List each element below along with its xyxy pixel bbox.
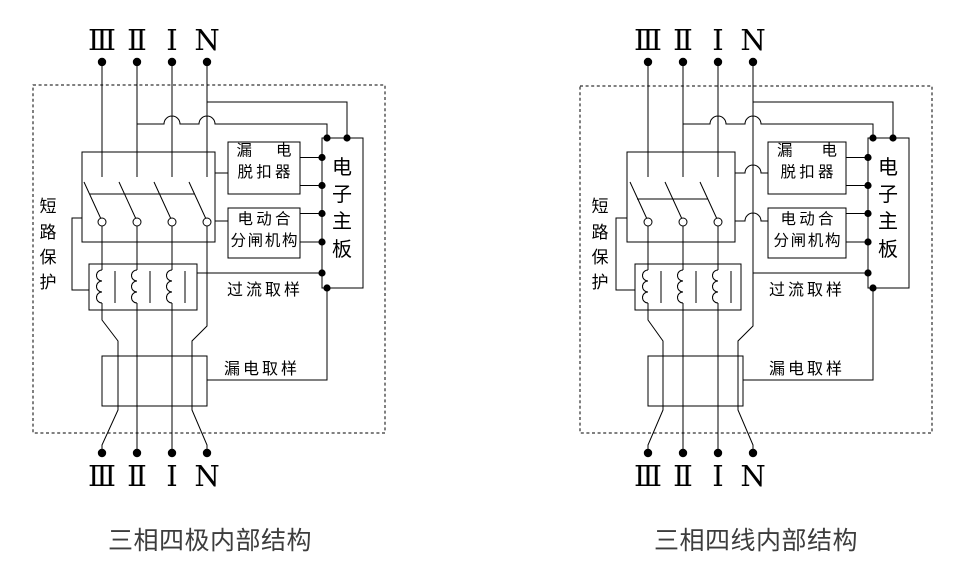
terminal-dot xyxy=(644,58,652,66)
terminal-label-bottom: N xyxy=(740,459,765,493)
terminal-dot xyxy=(749,449,757,457)
terminal-label-bottom: Ⅲ xyxy=(634,459,662,493)
terminal-dot xyxy=(98,58,106,66)
leakage-tripper-label: 漏 电 xyxy=(777,142,837,160)
junction-dot xyxy=(323,284,330,291)
terminal-label-bottom: Ⅰ xyxy=(166,459,177,493)
terminal-label-top: N xyxy=(740,23,765,57)
terminal-label-top: Ⅲ xyxy=(88,23,116,57)
junction-dot xyxy=(318,238,325,245)
circuit-diagrams: Ⅲ Ⅱ Ⅰ N Ⅲ Ⅱ Ⅰ N 短 路 保 护 漏 电 脱扣器 电动合 分闸机构… xyxy=(0,0,964,576)
junction-dot xyxy=(318,210,325,217)
page-canvas: Ⅲ Ⅱ Ⅰ N Ⅲ Ⅱ Ⅰ N 短 路 保 护 漏 电 脱扣器 电动合 分闸机构… xyxy=(0,0,964,576)
short-circuit-protection-label: 路 xyxy=(592,223,609,242)
terminal-dot xyxy=(133,449,141,457)
junction-dot xyxy=(864,210,871,217)
junction-dot xyxy=(869,284,876,291)
junction-dot xyxy=(864,238,871,245)
terminal-dot xyxy=(203,58,211,66)
terminal-label-bottom: Ⅰ xyxy=(712,459,723,493)
terminal-dot xyxy=(749,58,757,66)
junction-dot xyxy=(343,134,350,141)
terminal-label-bottom: Ⅲ xyxy=(88,459,116,493)
main-board-label: 子 xyxy=(332,184,352,206)
diagram-caption: 三相四线内部结构 xyxy=(654,526,858,555)
short-circuit-protection-label: 短 xyxy=(592,197,609,216)
main-board-label: 主 xyxy=(332,210,352,233)
junction-dot xyxy=(318,182,325,189)
short-circuit-protection-label: 保 xyxy=(40,248,57,267)
switch-contact xyxy=(168,218,176,226)
short-circuit-protection-label: 护 xyxy=(40,273,57,292)
terminal-dot xyxy=(714,449,722,457)
switch-contact xyxy=(714,218,722,226)
terminal-label-top: N xyxy=(194,23,219,57)
terminal-dot xyxy=(133,58,141,66)
terminal-label-top: Ⅱ xyxy=(127,23,147,57)
terminal-dot xyxy=(98,449,106,457)
terminal-dot xyxy=(714,58,722,66)
terminal-label-top: Ⅲ xyxy=(634,23,662,57)
terminal-dot xyxy=(203,449,211,457)
leakage-tripper-label: 脱扣器 xyxy=(781,163,834,181)
short-circuit-protection-label: 路 xyxy=(40,223,57,242)
diagram-caption: 三相四极内部结构 xyxy=(108,526,312,555)
short-circuit-protection-label: 护 xyxy=(592,273,609,292)
terminal-dot xyxy=(644,449,652,457)
motor-mechanism-label: 分闸机构 xyxy=(774,232,841,250)
junction-dot xyxy=(889,134,896,141)
motor-mechanism-label: 分闸机构 xyxy=(231,232,298,250)
terminal-label-bottom: Ⅱ xyxy=(673,459,693,493)
main-board-label: 板 xyxy=(332,238,352,261)
terminal-label-top: Ⅰ xyxy=(712,23,723,57)
switch-contact xyxy=(644,218,652,226)
terminal-dot xyxy=(679,449,687,457)
motor-mechanism-label: 电动合 xyxy=(781,210,834,228)
junction-dot xyxy=(864,182,871,189)
switch-contact xyxy=(679,218,687,226)
main-board-label: 子 xyxy=(878,184,898,206)
leakage-tripper-label: 漏 电 xyxy=(237,142,292,160)
switch-contact xyxy=(98,218,106,226)
main-board-label: 电 xyxy=(332,156,352,179)
motor-mechanism-label: 电动合 xyxy=(238,210,291,228)
junction-dot xyxy=(864,154,871,161)
junction-dot xyxy=(864,269,871,276)
main-board-label: 主 xyxy=(878,210,898,233)
terminal-dot xyxy=(168,449,176,457)
terminal-label-top: Ⅰ xyxy=(166,23,177,57)
terminal-label-bottom: Ⅱ xyxy=(127,459,147,493)
main-board-label: 板 xyxy=(878,238,898,261)
main-board-label: 电 xyxy=(878,156,898,179)
short-circuit-protection-label: 保 xyxy=(592,248,609,267)
terminal-dot xyxy=(679,58,687,66)
terminal-label-top: Ⅱ xyxy=(673,23,693,57)
switch-contact xyxy=(133,218,141,226)
leakage-tripper-label: 脱扣器 xyxy=(238,163,291,181)
junction-dot xyxy=(323,134,330,141)
terminal-label-bottom: N xyxy=(194,459,219,493)
junction-dot xyxy=(318,269,325,276)
terminal-dot xyxy=(168,58,176,66)
short-circuit-protection-label: 短 xyxy=(40,197,57,216)
junction-dot xyxy=(869,134,876,141)
junction-dot xyxy=(318,154,325,161)
switch-contact xyxy=(203,218,211,226)
